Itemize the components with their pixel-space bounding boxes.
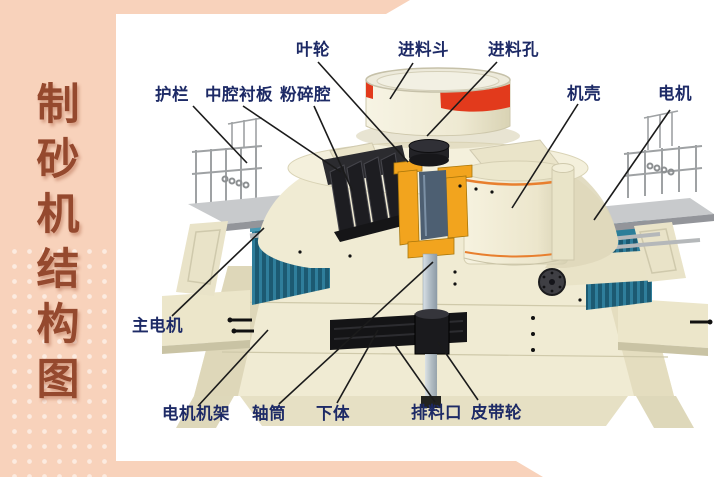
feed-hopper-shape xyxy=(356,68,520,149)
label-main-motor: 主电机 xyxy=(132,318,183,335)
label-lower-body: 下体 xyxy=(316,406,350,423)
label-belt-pulley: 皮带轮 xyxy=(471,405,522,422)
label-cavity-liner: 中腔衬板 xyxy=(205,87,273,104)
label-motor-frame: 电机机架 xyxy=(162,406,230,423)
label-guardrail: 护栏 xyxy=(155,87,189,104)
right-guardrail-shape xyxy=(624,111,702,198)
leader-line-guardrail xyxy=(193,106,247,163)
machine-structure-diagram: 叶轮 进料斗 进料孔 护栏 中腔衬板 粉碎腔 机壳 电机 主电机 电机机架 轴筒… xyxy=(0,0,720,477)
page: 制 砂 机 结 构 图 xyxy=(0,0,720,477)
inspection-flange xyxy=(539,269,565,295)
label-impeller: 叶轮 xyxy=(296,42,330,59)
label-motor: 电机 xyxy=(658,86,692,103)
label-discharge-port: 排料口 xyxy=(411,405,462,422)
casing-shape xyxy=(464,161,574,265)
left-guardrail-shape xyxy=(192,118,262,205)
label-shaft-tube: 轴筒 xyxy=(252,406,286,423)
label-casing: 机壳 xyxy=(567,86,601,103)
label-feed-hole: 进料孔 xyxy=(488,42,539,59)
impeller-shape xyxy=(409,140,449,167)
machine-illustration xyxy=(0,0,720,477)
label-crushing-chamber: 粉碎腔 xyxy=(280,87,331,104)
label-feed-hopper: 进料斗 xyxy=(398,42,449,59)
